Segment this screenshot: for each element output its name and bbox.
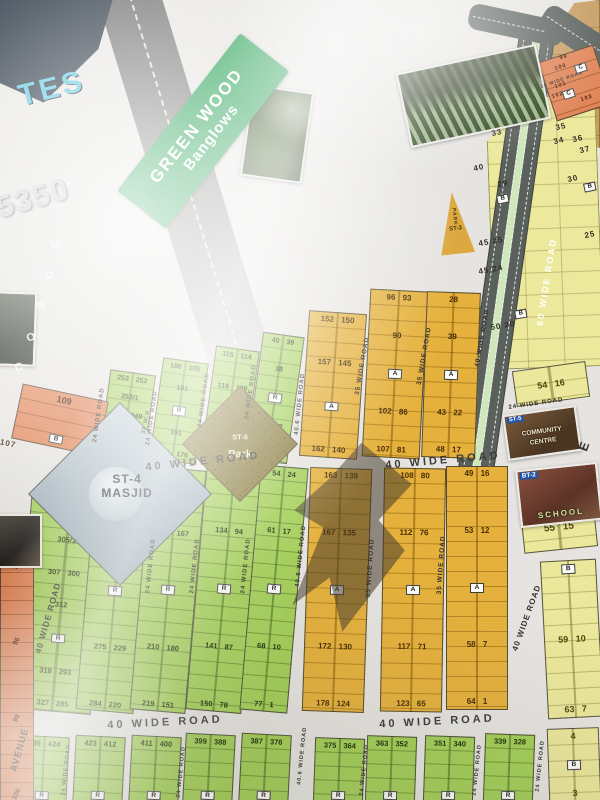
estate-logo-number: 5350 <box>0 172 74 225</box>
site-plan-photo: 253 252253/1256 248R260 244186 105181R19… <box>0 0 600 800</box>
green-wood-banner: GREEN WOOD Banglows <box>117 33 289 229</box>
branding-layer: TES 5350 GREEN WOOD Banglows <box>0 0 600 800</box>
